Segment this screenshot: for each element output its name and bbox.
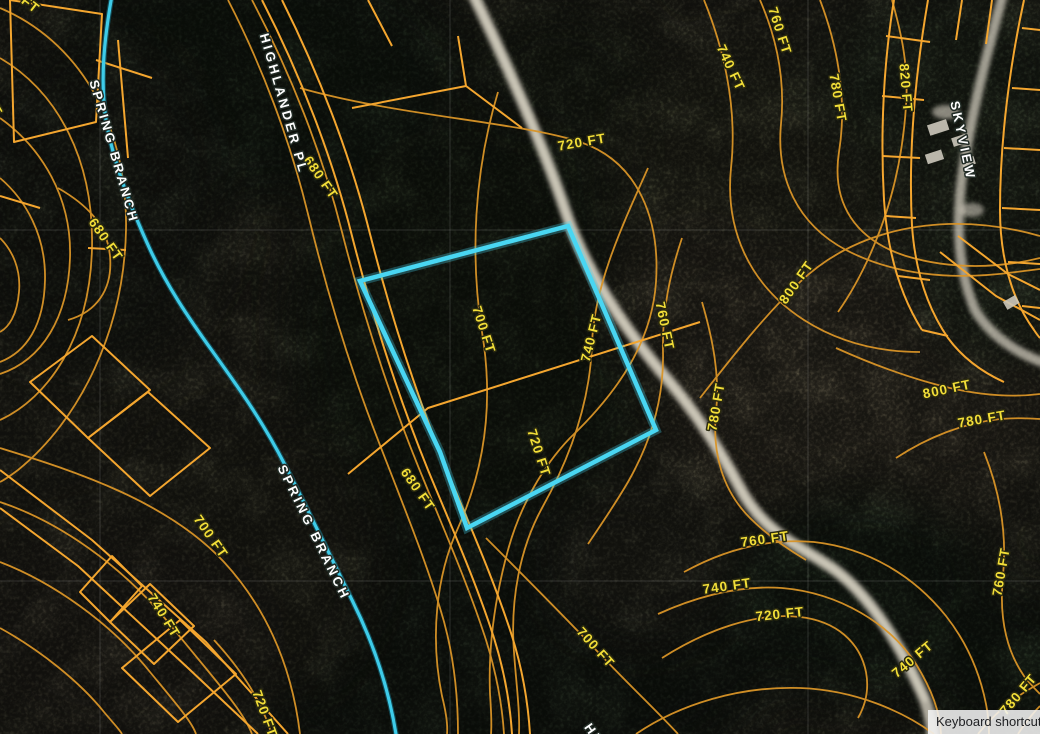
map-canvas[interactable]: 680 FT 680 FT 680 FT 680 FT 680 FT 700 F… <box>0 0 1040 734</box>
map-layers: 680 FT 680 FT 680 FT 680 FT 680 FT 700 F… <box>0 0 1040 734</box>
keyboard-shortcuts-button[interactable]: Keyboard shortcuts <box>928 710 1040 734</box>
